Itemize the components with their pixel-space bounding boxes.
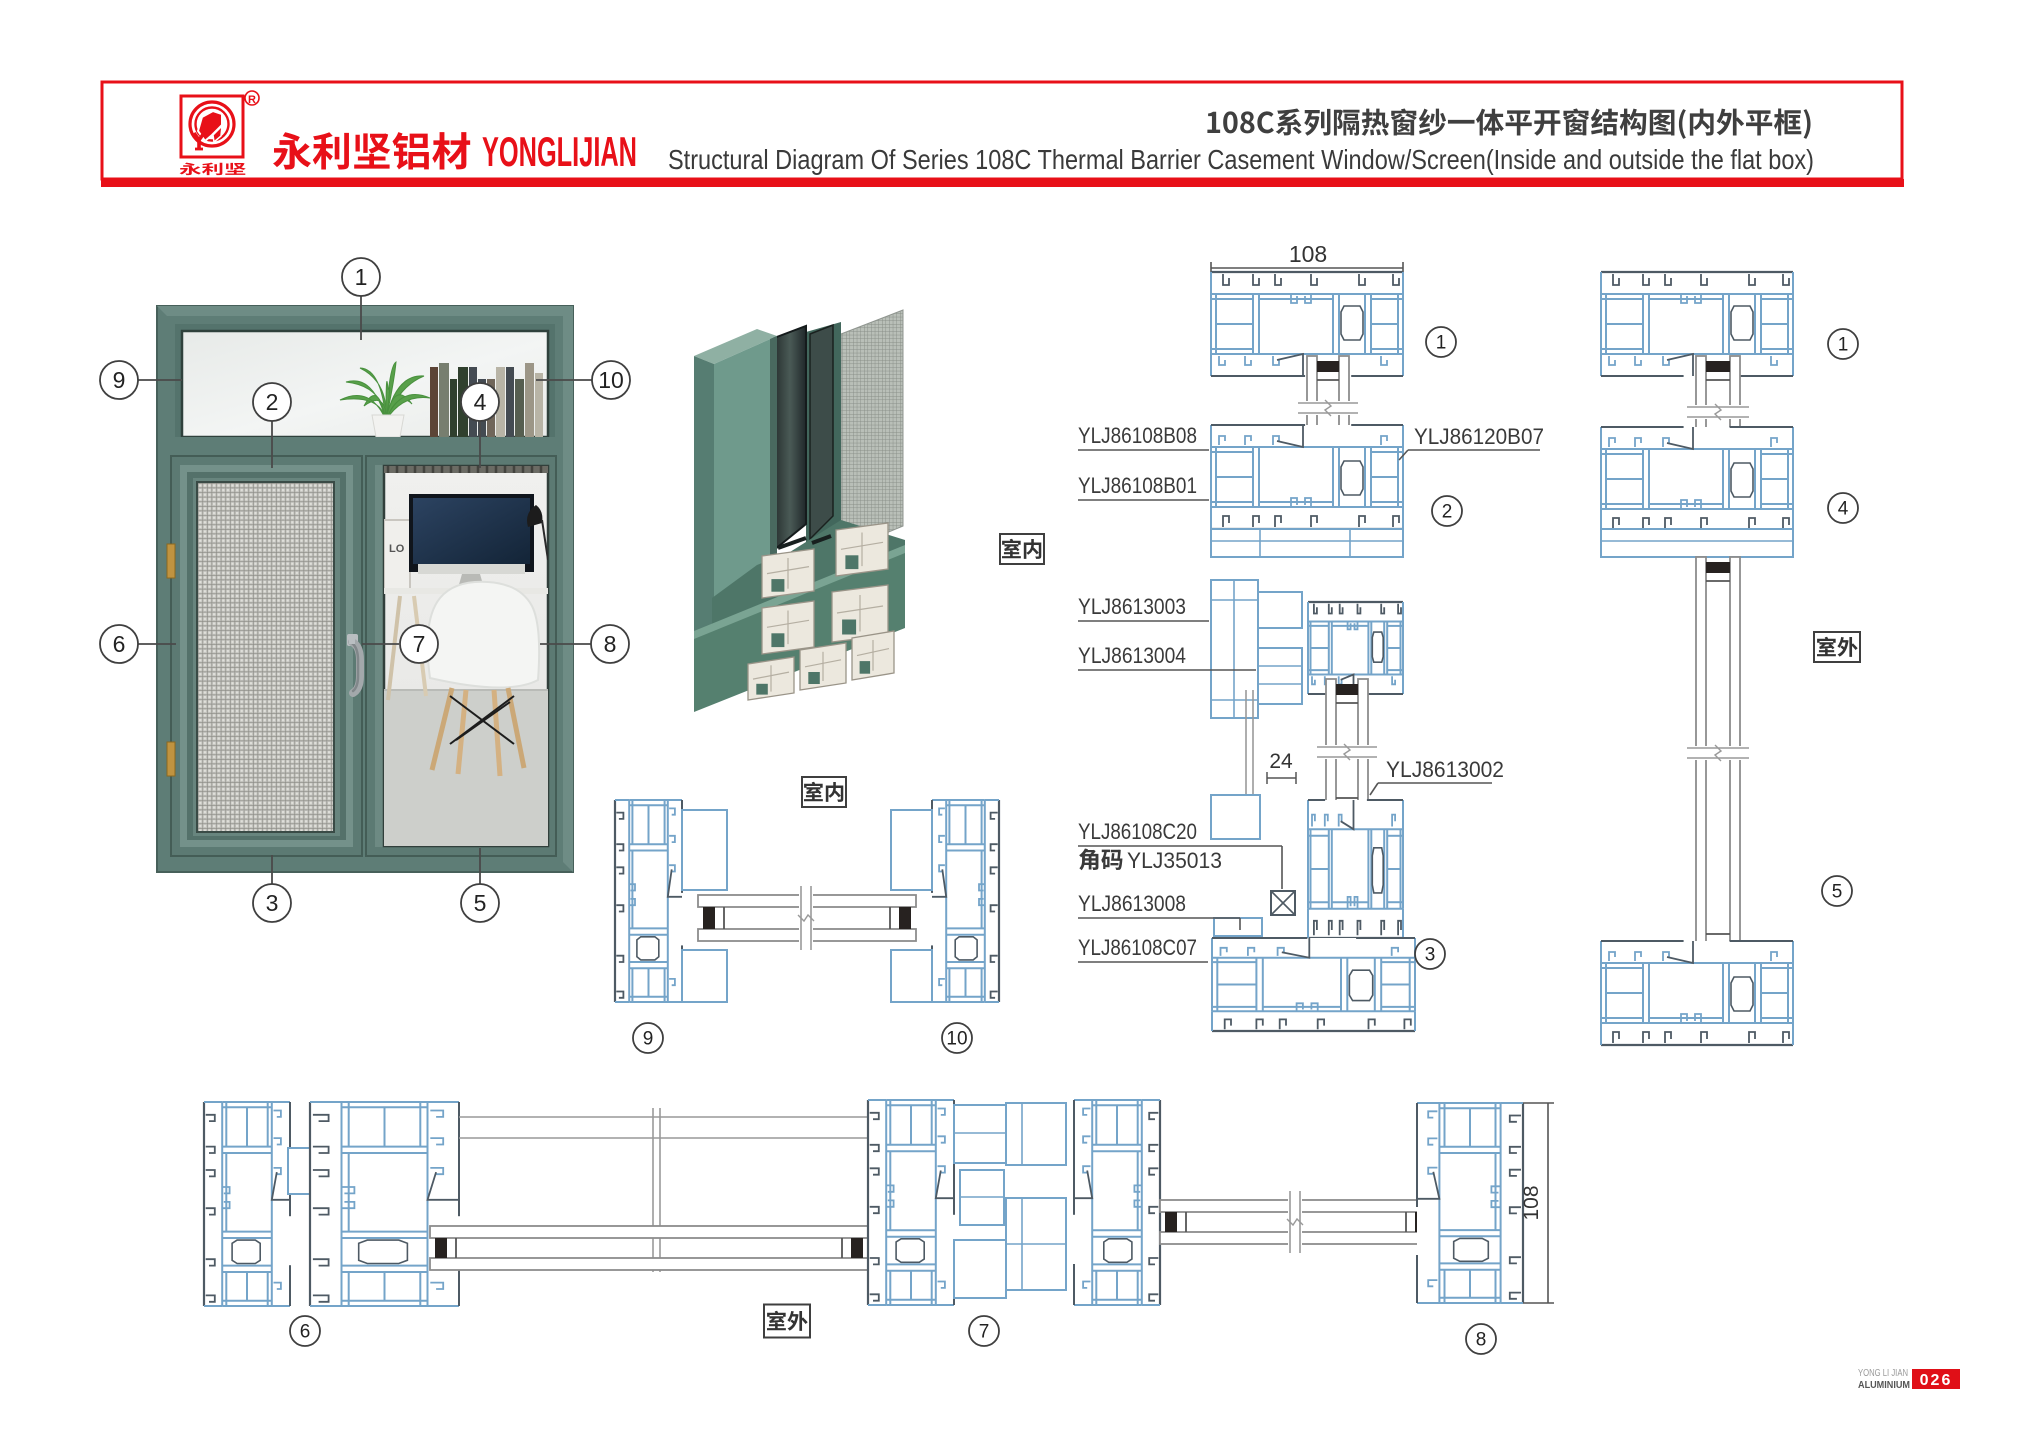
svg-text:108: 108	[1520, 1185, 1543, 1220]
svg-text:7: 7	[413, 631, 426, 657]
svg-text:Structural Diagram Of Series 1: Structural Diagram Of Series 108C Therma…	[668, 144, 1814, 175]
svg-text:YLJ8613003: YLJ8613003	[1078, 594, 1186, 619]
svg-text:YONG LI JIAN: YONG LI JIAN	[1858, 1368, 1908, 1379]
svg-text:108: 108	[1289, 241, 1327, 267]
svg-text:5: 5	[474, 890, 487, 916]
svg-text:7: 7	[979, 1322, 990, 1343]
svg-text:2: 2	[266, 389, 279, 415]
svg-text:6: 6	[300, 1322, 311, 1343]
svg-text:026: 026	[1920, 1372, 1953, 1389]
svg-text:ALUMINIUM: ALUMINIUM	[1858, 1380, 1910, 1391]
svg-text:1: 1	[1838, 335, 1849, 356]
svg-text:9: 9	[643, 1029, 654, 1050]
svg-text:10: 10	[598, 367, 624, 393]
svg-text:9: 9	[113, 367, 126, 393]
svg-text:6: 6	[113, 631, 126, 657]
svg-text:YLJ86120B07: YLJ86120B07	[1414, 424, 1544, 449]
svg-text:1: 1	[1436, 333, 1447, 354]
svg-text:YLJ86108C20: YLJ86108C20	[1078, 819, 1197, 844]
svg-text:5: 5	[1832, 882, 1843, 903]
svg-text:YONGLIJIAN: YONGLIJIAN	[482, 128, 637, 175]
svg-text:4: 4	[1838, 499, 1849, 520]
svg-text:YLJ35013: YLJ35013	[1127, 848, 1222, 873]
svg-text:3: 3	[266, 890, 279, 916]
svg-text:1: 1	[355, 264, 368, 290]
svg-text:YLJ8613008: YLJ8613008	[1078, 891, 1186, 916]
svg-text:YLJ86108B01: YLJ86108B01	[1078, 473, 1197, 498]
svg-text:YLJ8613004: YLJ8613004	[1078, 643, 1186, 668]
svg-text:8: 8	[1476, 1330, 1487, 1351]
svg-text:24: 24	[1269, 750, 1293, 773]
svg-text:YLJ86108B08: YLJ86108B08	[1078, 423, 1197, 448]
svg-text:4: 4	[474, 389, 487, 415]
svg-text:YLJ8613002: YLJ8613002	[1386, 757, 1504, 782]
svg-text:R: R	[248, 94, 256, 106]
svg-text:8: 8	[604, 631, 617, 657]
svg-text:YLJ86108C07: YLJ86108C07	[1078, 935, 1197, 960]
svg-text:10: 10	[946, 1029, 967, 1050]
svg-text:3: 3	[1425, 945, 1436, 966]
svg-text:2: 2	[1442, 502, 1453, 523]
svg-text:LO: LO	[389, 543, 405, 555]
